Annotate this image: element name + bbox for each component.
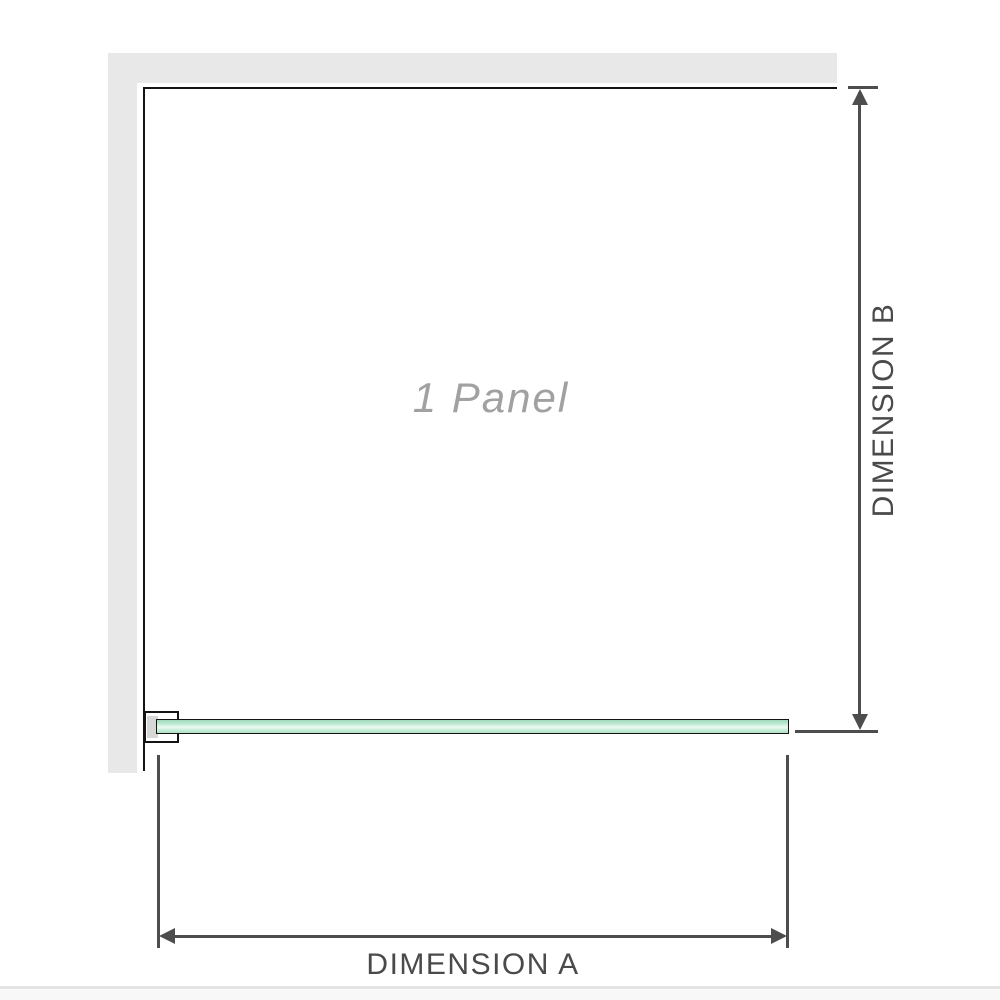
arrow-up-icon (852, 89, 868, 105)
panel-count-label: 1 Panel (413, 374, 569, 422)
arrow-right-icon (771, 928, 787, 944)
dimension-b-bottom-tick (795, 730, 878, 733)
panel-enclosure-outline: 1 Panel (143, 87, 837, 771)
glass-panel (156, 719, 789, 734)
dimension-a-label: DIMENSION A (366, 948, 579, 982)
dimension-b-label: DIMENSION B (867, 303, 901, 518)
wall-left (108, 53, 137, 773)
dimension-b-line (858, 92, 861, 722)
arrow-left-icon (159, 928, 175, 944)
page-bottom-area (0, 989, 1000, 1000)
dimension-a-right-extension (786, 755, 789, 948)
panel-dimension-diagram: 1 Panel DIMENSION B DIMENSION A (0, 0, 1000, 1000)
wall-top (108, 53, 837, 83)
dimension-a-left-extension (157, 755, 160, 948)
arrow-down-icon (852, 714, 868, 730)
dimension-a-line (164, 935, 782, 938)
